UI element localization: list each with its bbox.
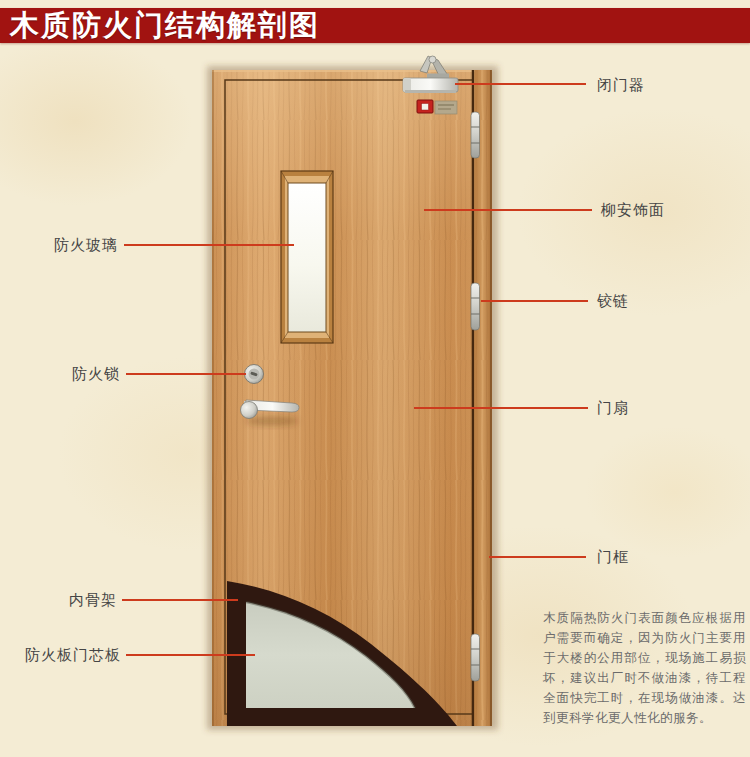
leader-door-leaf — [414, 407, 588, 409]
hinge-top — [471, 112, 480, 158]
door-closer-body — [403, 78, 458, 92]
leader-fire-lock — [126, 373, 246, 375]
name-plate — [435, 101, 457, 114]
leader-fire-board-core — [126, 654, 255, 656]
title-banner: 木质防火门结构解剖图 — [0, 8, 750, 43]
label-door-closer: 闭门器 — [597, 76, 645, 94]
hinge-middle — [471, 283, 480, 330]
leader-door-frame — [489, 556, 586, 558]
leader-inner-skeleton — [122, 599, 238, 601]
door-frame-strip — [475, 70, 492, 726]
leader-lauan-veneer — [424, 209, 592, 211]
label-inner-skeleton: 内骨架 — [20, 591, 117, 609]
hinge-bottom — [471, 634, 480, 681]
label-door-leaf: 门扇 — [597, 399, 629, 417]
page-title: 木质防火门结构解剖图 — [10, 8, 320, 43]
label-lauan-veneer: 柳安饰面 — [601, 201, 665, 219]
fire-glass-window — [281, 171, 333, 343]
label-fire-glass: 防火玻璃 — [20, 236, 118, 254]
leader-hinge — [481, 300, 588, 302]
description-paragraph: 木质隔热防火门表面颜色应根据用户需要而确定，因为防火门主要用于大楼的公用部位，现… — [543, 608, 746, 728]
label-door-frame: 门框 — [597, 548, 629, 566]
page: 木质防火门结构解剖图 防火玻璃 防火锁 内骨架 防火板门芯板 闭门器 柳安饰面 … — [0, 0, 750, 757]
leader-door-closer — [455, 83, 586, 85]
leader-fire-glass — [124, 244, 294, 246]
label-fire-lock: 防火锁 — [20, 365, 120, 383]
glass-pane — [288, 183, 326, 332]
fire-lock-deadbolt — [245, 365, 264, 384]
label-fire-board-core: 防火板门芯板 — [20, 646, 121, 664]
label-hinge: 铰链 — [597, 292, 629, 310]
alarm-indicator — [417, 100, 433, 113]
